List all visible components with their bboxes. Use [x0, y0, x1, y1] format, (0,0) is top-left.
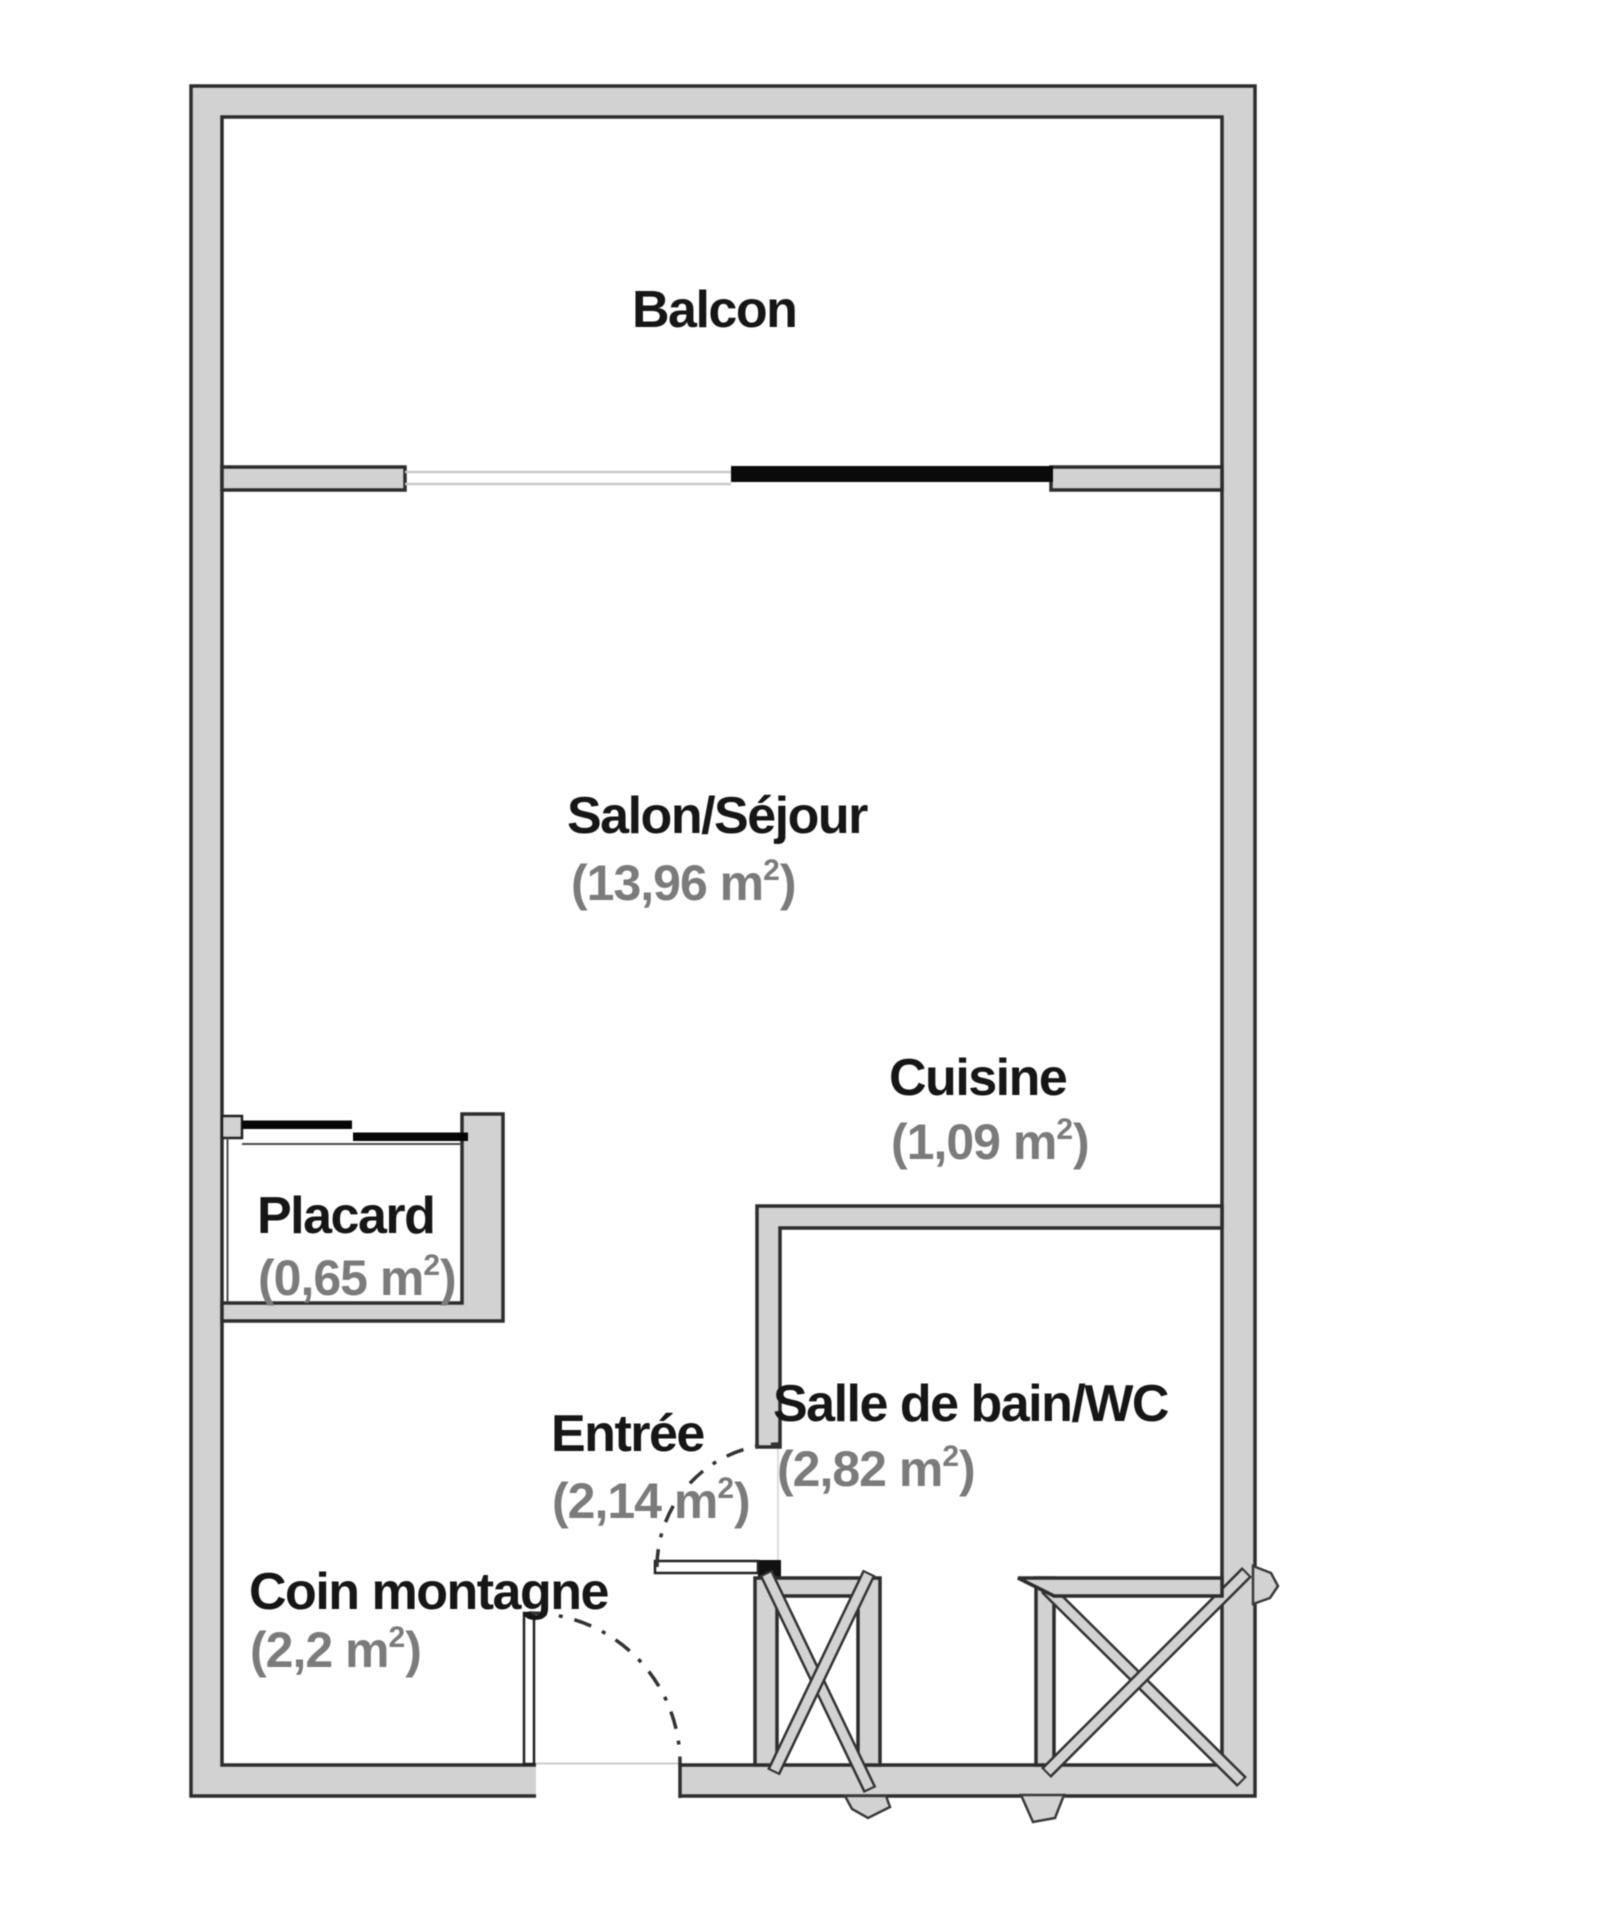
svg-text:Salon/Séjour: Salon/Séjour — [567, 787, 868, 845]
svg-text:Balcon: Balcon — [632, 281, 796, 339]
svg-text:Coin montagne: Coin montagne — [249, 1563, 609, 1621]
svg-text:Cuisine: Cuisine — [889, 1049, 1067, 1107]
svg-text:Salle de bain/WC: Salle de bain/WC — [773, 1375, 1169, 1433]
svg-text:(13,96 m2): (13,96 m2) — [571, 854, 795, 911]
svg-text:Placard: Placard — [257, 1187, 434, 1245]
svg-text:Entrée: Entrée — [551, 1405, 704, 1463]
